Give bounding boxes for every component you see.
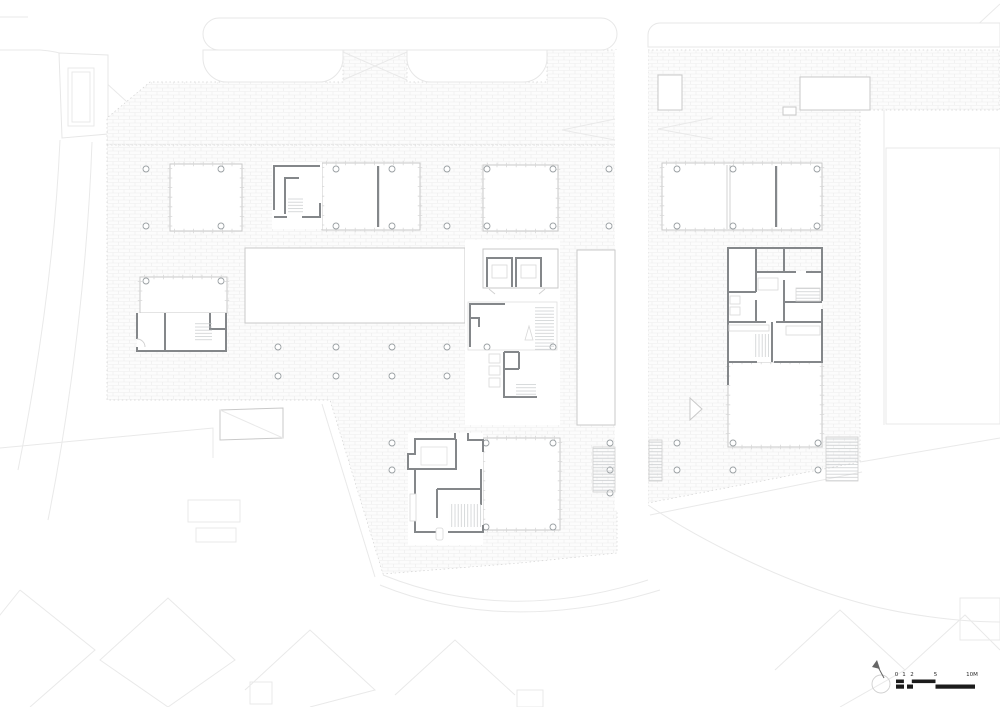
floor-plan-drawing: 0 1 2 5 10M (0, 0, 1000, 707)
scale-label-1: 1 (902, 672, 906, 678)
stair-treads (753, 334, 769, 357)
kitchen-counter (729, 325, 769, 331)
elevator-car (521, 265, 536, 278)
scale-label-10m: 10M (966, 672, 978, 678)
bottom-unit (408, 433, 483, 545)
stair-treads (535, 306, 554, 350)
left-unit (137, 313, 227, 352)
elevator-car (492, 265, 507, 278)
scale-label-2: 2 (910, 672, 914, 678)
stair-treads (195, 323, 212, 342)
sofa (786, 326, 820, 335)
stair-core-top (272, 162, 322, 229)
scale-label-0: 0 (895, 672, 899, 678)
stair-treads (449, 504, 482, 527)
scale-label-5: 5 (934, 672, 938, 678)
stair-treads (288, 197, 303, 213)
stair-treads (516, 384, 536, 397)
